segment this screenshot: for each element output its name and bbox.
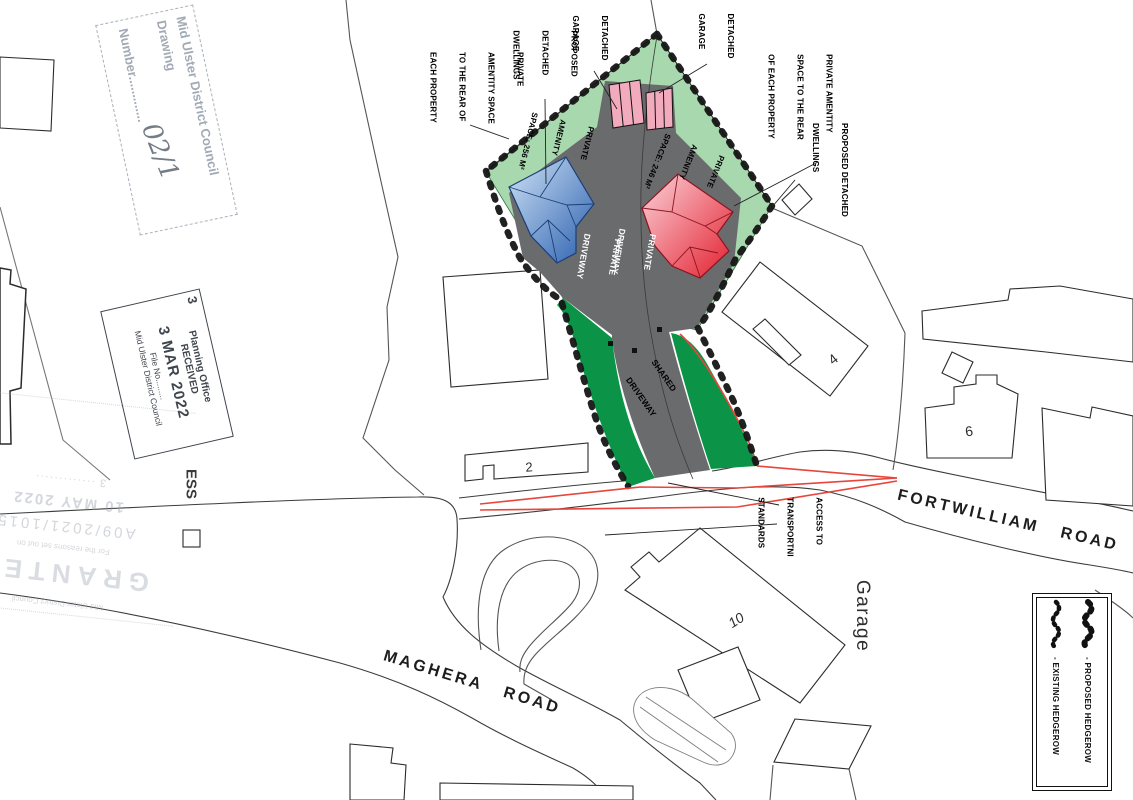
label-detached-garage-left: DETACHED GARAGE [551, 15, 629, 60]
garage-block-right [646, 88, 673, 130]
label-line: DRIVEWAY [575, 233, 593, 280]
label-proposed-dwellings-right: PROPOSED DETACHED DWELLINGS [791, 123, 869, 217]
proposed-hedgerow-symbol [1080, 599, 1096, 651]
building-long-top-right [922, 286, 1133, 362]
label-line: DETACHED [540, 30, 550, 79]
label-line: DWELLINGS [511, 30, 521, 79]
label-line: AMENITY [668, 143, 699, 201]
label-line: DRIVEWAY [624, 375, 659, 418]
post-icon [657, 327, 662, 332]
building-no4 [722, 262, 868, 396]
legend-box: - PROPOSED HEDGEROW - EXISTING HEDGEROW [1032, 593, 1112, 791]
label-line: AMENITY [544, 118, 568, 177]
label-line: PRIVATE [640, 233, 658, 280]
building-diamond-south [774, 719, 871, 769]
label-line: DETACHED [726, 13, 736, 58]
parcel-line-bottom-1 [849, 769, 856, 800]
legend-content: - PROPOSED HEDGEROW - EXISTING HEDGEROW [1040, 599, 1104, 785]
building-small-square [183, 530, 200, 547]
garage-map-label: Garage [851, 580, 873, 652]
label-line: DRIVEWAY [610, 228, 628, 275]
legend-row-proposed: - PROPOSED HEDGEROW [1075, 599, 1101, 785]
label-line: OF EACH PROPERTY [766, 54, 776, 140]
building-diamond-near-6 [942, 352, 973, 383]
label-line: SPACE: 246 M² [641, 132, 672, 190]
label-line: PRIVATE [573, 125, 597, 184]
granted-stamp: Mid Ulster District Council GRANTED For … [0, 388, 196, 626]
label-line: PROPOSED DETACHED [840, 123, 850, 217]
house-number-2: 2 [525, 459, 533, 474]
building-top-left [0, 57, 54, 131]
building-bottom-left-stepped [350, 744, 406, 800]
label-line: SPACE: 256 M² [516, 111, 540, 170]
label-line: GARAGE [571, 15, 581, 60]
parcel-line-north-stub-2 [346, 0, 350, 40]
post-icon [632, 348, 637, 353]
legend-existing-label: - EXISTING HEDGEROW [1052, 657, 1061, 755]
stamp-number-label: Number............. [114, 26, 153, 123]
site-plan-drawing: PRIVATE AMENTITY SPACE TO THE REAR OF EA… [0, 0, 1133, 800]
label-line: STANDARDS [756, 497, 766, 556]
label-access-transportni: ACCESS TO TRANSPORTNI STANDARDS [736, 497, 843, 556]
splay-strip-link [757, 466, 897, 478]
parcel-line-bottom-2 [770, 765, 773, 800]
legend-proposed-label: - PROPOSED HEDGEROW [1084, 657, 1093, 763]
label-line: SHARED [649, 357, 684, 400]
building-west-of-site [443, 270, 548, 387]
label-line: TRANSPORTNI [785, 497, 795, 556]
label-line: GARAGE [697, 13, 707, 58]
label-line: EACH PROPERTY [427, 52, 437, 124]
label-line: DETACHED [600, 15, 610, 60]
post-icon [608, 341, 613, 346]
building-bottom-strip [440, 783, 633, 800]
legend-row-existing: - EXISTING HEDGEROW [1043, 599, 1069, 785]
label-detached-garage-right: DETACHED GARAGE [677, 13, 755, 58]
building-no6 [925, 375, 1018, 458]
label-line: PRIVATE [696, 154, 727, 212]
cul-de-sac-loop-inner [497, 560, 579, 672]
label-line: ACCESS TO [814, 497, 824, 556]
existing-hedgerow-symbol [1048, 599, 1064, 651]
parcel-line-north-stub [651, 0, 657, 34]
building-right-middle [1042, 407, 1133, 506]
label-line: TO THE REAR OF [457, 52, 467, 124]
label-line: DWELLINGS [811, 123, 821, 217]
